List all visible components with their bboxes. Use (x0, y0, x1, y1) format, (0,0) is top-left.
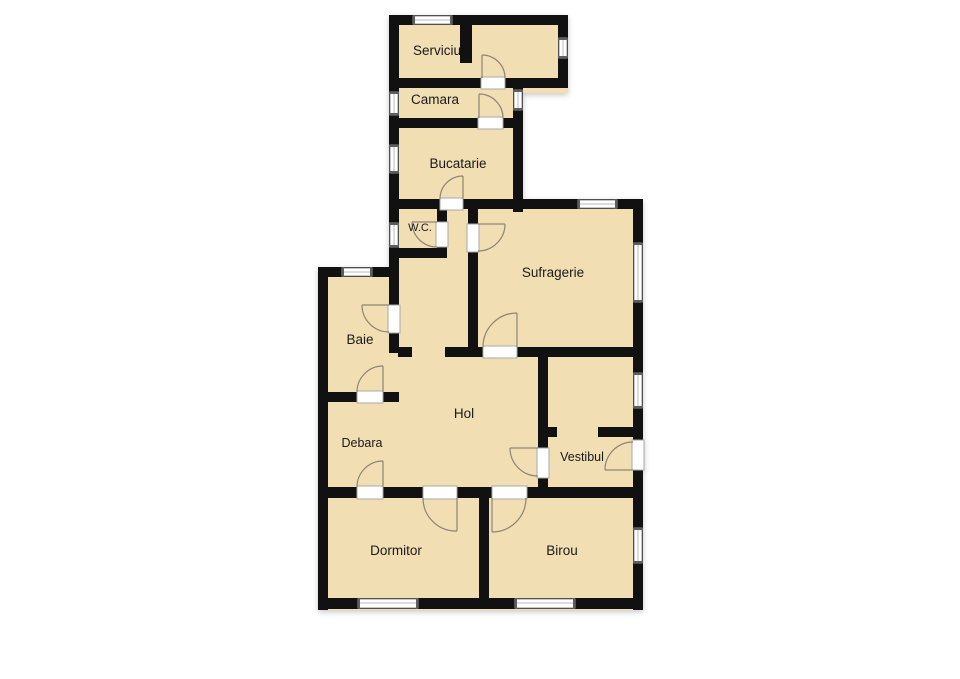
wall-serviciu-divider (460, 25, 472, 63)
wall-vestibul-stub-left (546, 427, 557, 437)
wall-sufragerie-bottom (445, 347, 643, 357)
window-serviciu-right (558, 38, 568, 58)
room-label-wc: W.C. (408, 222, 432, 234)
window-vestibul-right (633, 373, 643, 408)
wall-dormitor-birou (479, 498, 489, 608)
room-label-bucatarie: Bucatarie (429, 156, 486, 171)
room-label-baie: Baie (346, 332, 373, 347)
room-label-serviciu: Serviciu (413, 43, 461, 58)
room-label-debara: Debara (342, 436, 383, 450)
wall-sufragerie-left (468, 199, 478, 357)
wall-vestibul-stub-right (598, 427, 635, 437)
wall-wc-bottom (389, 248, 447, 258)
window-sufragerie-top (578, 199, 617, 209)
wall-left-upper-exterior (389, 15, 399, 353)
window-serviciu-top (413, 15, 452, 25)
window-dormitor-bottom (358, 598, 418, 609)
window-camara-left (389, 92, 399, 115)
room-label-vestibul: Vestibul (560, 450, 604, 464)
window-birou-right (633, 528, 643, 563)
room-label-dormitor: Dormitor (370, 543, 422, 558)
floorplan-svg: Serviciu Camara Bucatarie W.C. Sufrageri… (0, 0, 960, 679)
window-baie-top (342, 267, 372, 277)
room-label-birou: Birou (546, 543, 578, 558)
wall-serviciu-bottom (389, 78, 568, 88)
window-sufragerie-right (633, 243, 643, 302)
room-label-camara: Camara (411, 92, 460, 107)
wall-left-exterior (318, 267, 328, 610)
room-label-sufragerie: Sufragerie (522, 265, 584, 280)
window-wc-left (389, 223, 399, 247)
window-bucatarie-left (389, 145, 399, 173)
room-label-hol: Hol (454, 406, 474, 421)
wall-hol-top-stub (398, 347, 412, 357)
floorplan-page: Serviciu Camara Bucatarie W.C. Sufrageri… (0, 0, 960, 679)
window-camara-right (513, 90, 523, 110)
window-birou-bottom (515, 598, 575, 609)
